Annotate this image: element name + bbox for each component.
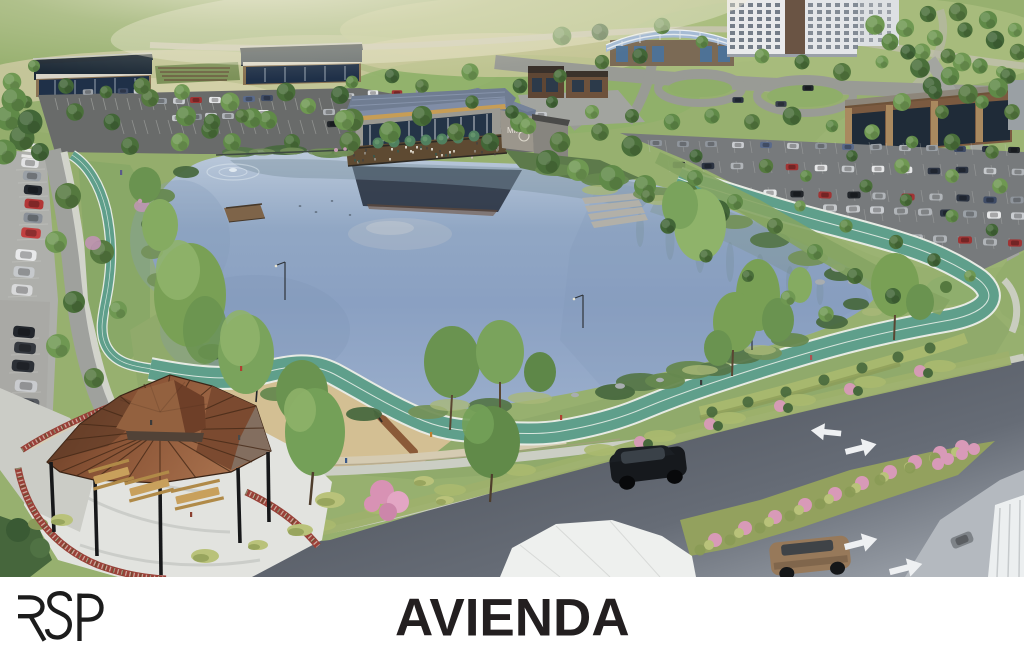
svg-text:AVIENDA: AVIENDA [395,589,630,648]
